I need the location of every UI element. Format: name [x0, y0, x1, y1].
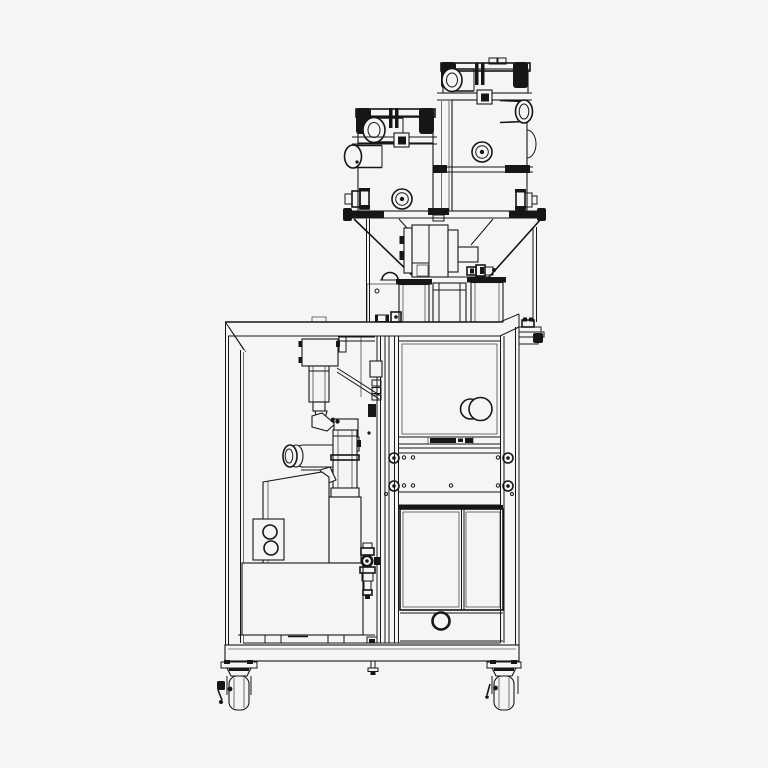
bolt-row-upper: [389, 453, 513, 463]
gearbox-side-box: [458, 247, 478, 262]
feeder-right-inlet-cylinder: [442, 69, 462, 92]
gearbox-main-body: [412, 225, 448, 277]
pedestal-right-top-bar: [467, 277, 506, 283]
center-divider: [367, 336, 399, 643]
pedestal-left: [399, 285, 429, 323]
feeder-left-suction-port: [345, 145, 362, 168]
caster-left-brake: [217, 681, 225, 690]
pedestal-right: [471, 283, 503, 323]
filling-mechanism: [238, 336, 381, 643]
caster-left: [217, 660, 257, 710]
feeder-left-lid-clamp-right: [419, 108, 434, 134]
feeder-right-lid-clamp-right: [513, 62, 528, 88]
double-doors: [400, 509, 503, 610]
pump-base-box: [242, 563, 363, 635]
right-compartment: [385, 341, 514, 641]
caster-right-wheel: [494, 676, 514, 710]
center-drop-tube: [433, 283, 466, 322]
base-and-casters: [217, 645, 521, 710]
side-bracket: [519, 318, 544, 345]
leveling-foot: [371, 661, 375, 668]
caster-right: [485, 660, 521, 710]
bracket-clamp: [533, 333, 543, 343]
vent-hole: [433, 613, 450, 630]
machine-side-elevation-drawing: [0, 0, 768, 768]
divider-sensor-block: [370, 361, 382, 377]
filler-head-box: [302, 339, 338, 366]
feeder-left: [345, 108, 438, 211]
bolt-row-lower: [389, 481, 513, 491]
name-plate: [430, 438, 456, 443]
nozzle-elbow: [312, 413, 335, 431]
gearbox-mount-plate: [404, 228, 412, 273]
feeder-right-suction-port: [516, 100, 533, 123]
pedestal-left-top-bar: [396, 279, 432, 285]
base-skirt: [225, 645, 519, 661]
feeder-right: [420, 58, 537, 211]
divider-switch: [368, 404, 376, 417]
dome-cap: [382, 273, 398, 280]
pipe-collar: [331, 488, 359, 497]
caster-left-wheel: [229, 676, 249, 710]
caster-right-brake: [487, 684, 490, 695]
feeder-rail-clamp-right: [505, 165, 530, 173]
technical-drawing-page: [0, 0, 768, 768]
feeder-left-inlet-cylinder: [363, 118, 385, 143]
